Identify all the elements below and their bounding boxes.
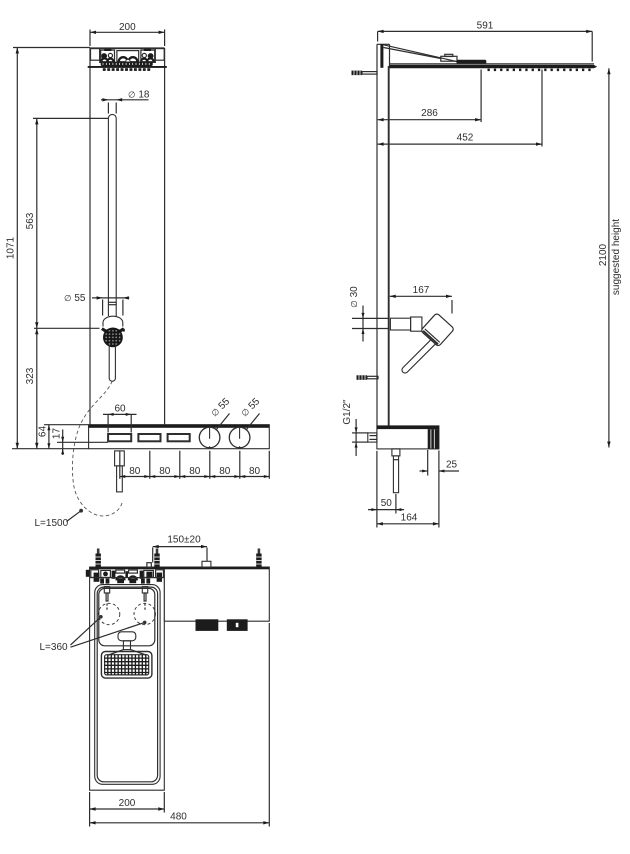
svg-text:563: 563 — [25, 212, 36, 229]
svg-text:452: 452 — [457, 133, 474, 144]
svg-text:2100: 2100 — [598, 243, 609, 266]
svg-text:60: 60 — [114, 404, 126, 415]
svg-text:∅ 55: ∅ 55 — [239, 396, 262, 419]
svg-text:480: 480 — [170, 811, 187, 822]
svg-text:L=360: L=360 — [40, 642, 69, 653]
svg-text:G1/2": G1/2" — [342, 399, 353, 425]
svg-text:80: 80 — [159, 466, 171, 477]
svg-text:1071: 1071 — [6, 236, 17, 259]
svg-text:∅ 18: ∅ 18 — [128, 89, 150, 100]
svg-text:∅ 55: ∅ 55 — [64, 293, 86, 304]
svg-text:17: 17 — [51, 428, 62, 440]
svg-text:25: 25 — [446, 459, 458, 470]
svg-text:200: 200 — [119, 22, 136, 33]
svg-text:suggested height: suggested height — [611, 219, 622, 295]
svg-text:∅ 30: ∅ 30 — [349, 286, 360, 308]
svg-text:323: 323 — [25, 367, 36, 384]
svg-text:200: 200 — [119, 798, 136, 809]
svg-text:64: 64 — [38, 426, 49, 438]
svg-text:591: 591 — [477, 21, 494, 32]
svg-text:286: 286 — [421, 108, 438, 119]
svg-text:80: 80 — [189, 466, 201, 477]
svg-text:L=1500: L=1500 — [35, 518, 69, 529]
svg-text:50: 50 — [381, 498, 393, 509]
svg-text:167: 167 — [413, 285, 430, 296]
svg-text:∅ 55: ∅ 55 — [209, 396, 232, 419]
svg-text:80: 80 — [129, 466, 141, 477]
svg-text:80: 80 — [249, 466, 261, 477]
svg-text:80: 80 — [219, 466, 231, 477]
svg-text:164: 164 — [401, 512, 418, 523]
svg-text:150±20: 150±20 — [167, 535, 201, 546]
